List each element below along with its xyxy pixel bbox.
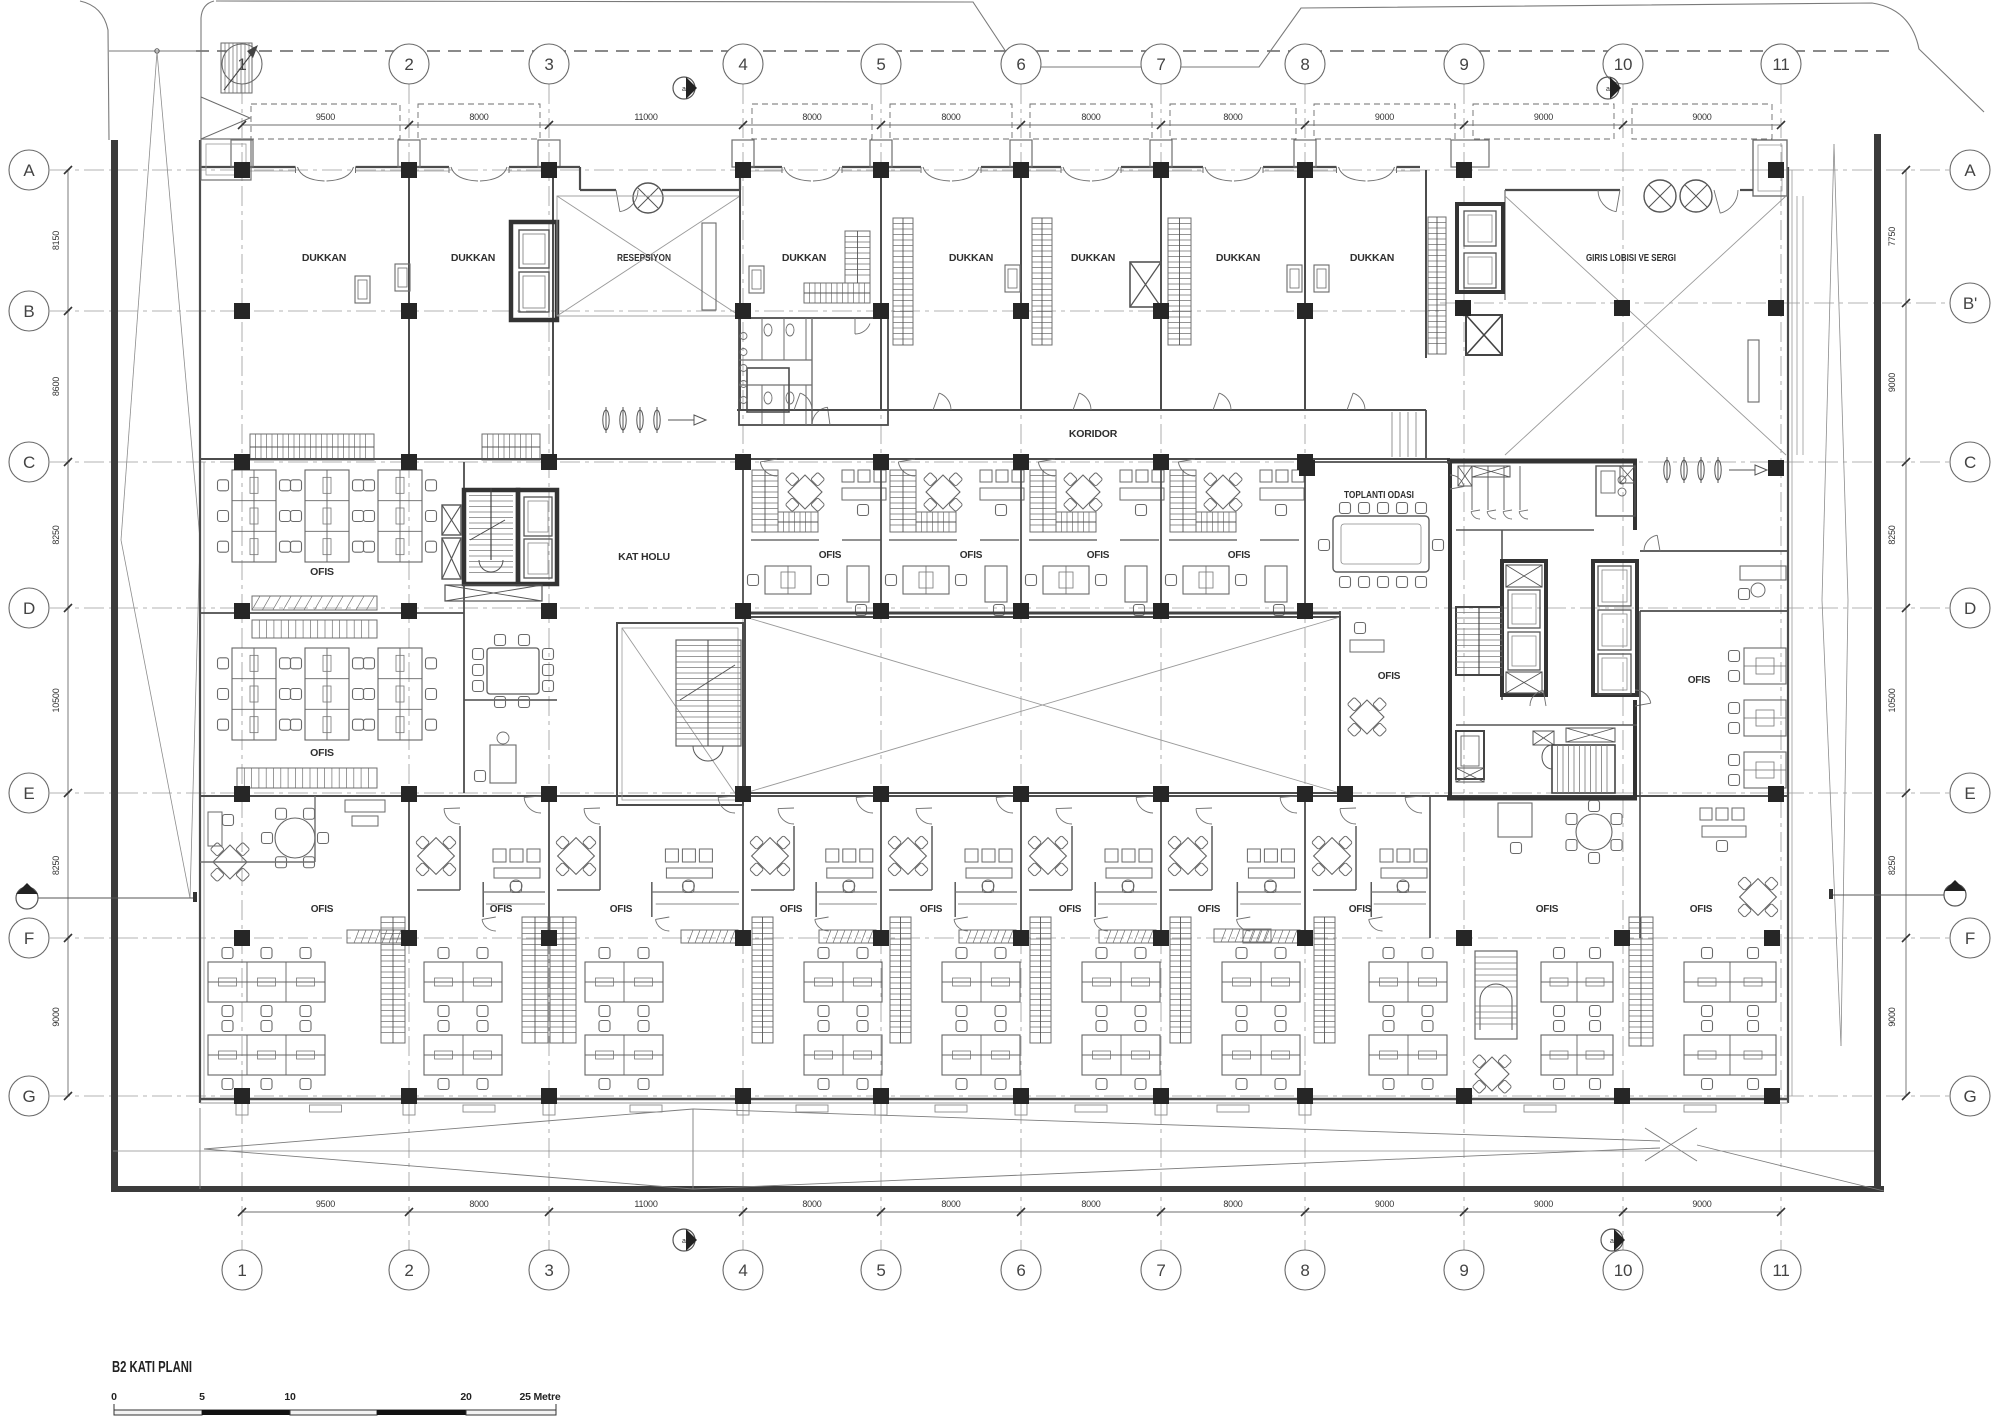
svg-text:8000: 8000 — [802, 1199, 821, 1209]
svg-text:9: 9 — [1459, 1261, 1468, 1280]
svg-text:OFIS: OFIS — [311, 904, 334, 915]
svg-text:11000: 11000 — [634, 112, 658, 122]
svg-text:8: 8 — [1300, 55, 1309, 74]
svg-text:DUKKAN: DUKKAN — [1071, 252, 1115, 264]
svg-text:11: 11 — [1772, 55, 1789, 74]
svg-text:10500: 10500 — [1887, 688, 1897, 712]
svg-text:E: E — [1964, 784, 1975, 803]
svg-text:10: 10 — [284, 1391, 296, 1403]
svg-text:9000: 9000 — [51, 1007, 61, 1026]
svg-text:OFIS: OFIS — [819, 550, 842, 561]
svg-text:GIRIS LOBISI VE SERGI: GIRIS LOBISI VE SERGI — [1586, 252, 1676, 264]
svg-text:C: C — [1964, 453, 1976, 472]
svg-text:E: E — [23, 784, 34, 803]
svg-text:9000: 9000 — [1692, 112, 1711, 122]
svg-text:OFIS: OFIS — [1690, 904, 1713, 915]
svg-text:8: 8 — [1300, 1261, 1309, 1280]
svg-text:2: 2 — [404, 1261, 413, 1280]
svg-text:OFIS: OFIS — [960, 550, 983, 561]
svg-text:8250: 8250 — [1887, 525, 1897, 544]
svg-text:8000: 8000 — [941, 1199, 960, 1209]
svg-text:KAT HOLU: KAT HOLU — [618, 551, 670, 563]
svg-text:8250: 8250 — [1887, 856, 1897, 875]
svg-text:OFIS: OFIS — [610, 904, 633, 915]
svg-text:OFIS: OFIS — [780, 904, 803, 915]
svg-text:9000: 9000 — [1375, 112, 1394, 122]
svg-text:OFIS: OFIS — [1536, 904, 1559, 915]
svg-text:8000: 8000 — [469, 1199, 488, 1209]
svg-text:F: F — [1965, 929, 1975, 948]
svg-text:TOPLANTI ODASI: TOPLANTI ODASI — [1344, 489, 1414, 501]
svg-text:9000: 9000 — [1534, 1199, 1553, 1209]
svg-text:C: C — [23, 453, 35, 472]
svg-text:6: 6 — [1016, 55, 1025, 74]
svg-text:9000: 9000 — [1887, 1007, 1897, 1026]
svg-text:DUKKAN: DUKKAN — [782, 252, 826, 264]
svg-text:8000: 8000 — [1223, 1199, 1242, 1209]
svg-text:OFIS: OFIS — [1087, 550, 1110, 561]
svg-text:A: A — [1964, 161, 1976, 180]
svg-text:a: a — [682, 86, 686, 93]
svg-text:11: 11 — [1772, 1261, 1789, 1280]
svg-text:20: 20 — [460, 1391, 472, 1403]
svg-text:10: 10 — [1614, 55, 1633, 74]
svg-text:7: 7 — [1156, 55, 1165, 74]
svg-text:D: D — [1964, 599, 1976, 618]
svg-text:OFIS: OFIS — [310, 566, 334, 578]
svg-text:OFIS: OFIS — [310, 747, 334, 759]
svg-text:6: 6 — [1016, 1261, 1025, 1280]
svg-text:9000: 9000 — [1534, 112, 1553, 122]
svg-text:3: 3 — [544, 1261, 553, 1280]
svg-text:B: B — [23, 302, 34, 321]
svg-text:B': B' — [1963, 294, 1977, 313]
svg-text:8250: 8250 — [51, 856, 61, 875]
svg-text:0: 0 — [111, 1391, 117, 1403]
svg-text:8250: 8250 — [51, 525, 61, 544]
svg-text:8150: 8150 — [51, 231, 61, 250]
svg-text:D: D — [23, 599, 35, 618]
svg-text:4: 4 — [738, 55, 747, 74]
svg-text:OFIS: OFIS — [1059, 904, 1082, 915]
svg-text:8000: 8000 — [1223, 112, 1242, 122]
svg-text:OFIS: OFIS — [1688, 675, 1711, 686]
svg-text:2: 2 — [404, 55, 413, 74]
svg-text:G: G — [1963, 1087, 1976, 1106]
svg-text:5: 5 — [199, 1391, 205, 1403]
svg-text:9500: 9500 — [316, 1199, 335, 1209]
svg-text:OFIS: OFIS — [1198, 904, 1221, 915]
svg-text:7: 7 — [1156, 1261, 1165, 1280]
svg-text:3: 3 — [544, 55, 553, 74]
svg-text:G: G — [22, 1087, 35, 1106]
svg-text:A: A — [23, 161, 35, 180]
svg-text:10: 10 — [1614, 1261, 1633, 1280]
svg-text:9: 9 — [1459, 55, 1468, 74]
svg-text:DUKKAN: DUKKAN — [1216, 252, 1260, 264]
svg-text:9500: 9500 — [316, 112, 335, 122]
svg-text:a: a — [1606, 86, 1610, 93]
svg-text:11000: 11000 — [634, 1199, 658, 1209]
svg-text:F: F — [24, 929, 34, 948]
svg-text:DUKKAN: DUKKAN — [451, 252, 495, 264]
svg-text:8600: 8600 — [51, 377, 61, 396]
svg-text:9000: 9000 — [1887, 373, 1897, 392]
svg-text:B2 KATI PLANI: B2 KATI PLANI — [112, 1359, 192, 1376]
svg-text:OFIS: OFIS — [920, 904, 943, 915]
svg-text:5: 5 — [876, 55, 885, 74]
svg-text:DUKKAN: DUKKAN — [302, 252, 346, 264]
svg-text:8000: 8000 — [1081, 1199, 1100, 1209]
svg-text:OFIS: OFIS — [490, 904, 513, 915]
svg-text:8000: 8000 — [802, 112, 821, 122]
svg-text:OFIS: OFIS — [1378, 671, 1401, 682]
svg-text:5: 5 — [876, 1261, 885, 1280]
svg-text:a: a — [1610, 1238, 1614, 1245]
svg-text:9000: 9000 — [1375, 1199, 1394, 1209]
svg-text:10500: 10500 — [51, 688, 61, 712]
svg-text:OFIS: OFIS — [1349, 904, 1372, 915]
svg-text:7750: 7750 — [1887, 227, 1897, 246]
svg-text:1: 1 — [237, 1261, 246, 1280]
svg-text:8000: 8000 — [941, 112, 960, 122]
svg-text:4: 4 — [738, 1261, 747, 1280]
svg-text:OFIS: OFIS — [1228, 550, 1251, 561]
svg-text:a: a — [682, 1238, 686, 1245]
svg-text:DUKKAN: DUKKAN — [949, 252, 993, 264]
svg-text:8000: 8000 — [1081, 112, 1100, 122]
svg-text:8000: 8000 — [469, 112, 488, 122]
svg-text:DUKKAN: DUKKAN — [1350, 252, 1394, 264]
svg-text:9000: 9000 — [1692, 1199, 1711, 1209]
svg-text:25 Metre: 25 Metre — [519, 1391, 560, 1403]
svg-text:RESEPSIYON: RESEPSIYON — [617, 252, 671, 264]
svg-text:KORIDOR: KORIDOR — [1069, 428, 1118, 440]
